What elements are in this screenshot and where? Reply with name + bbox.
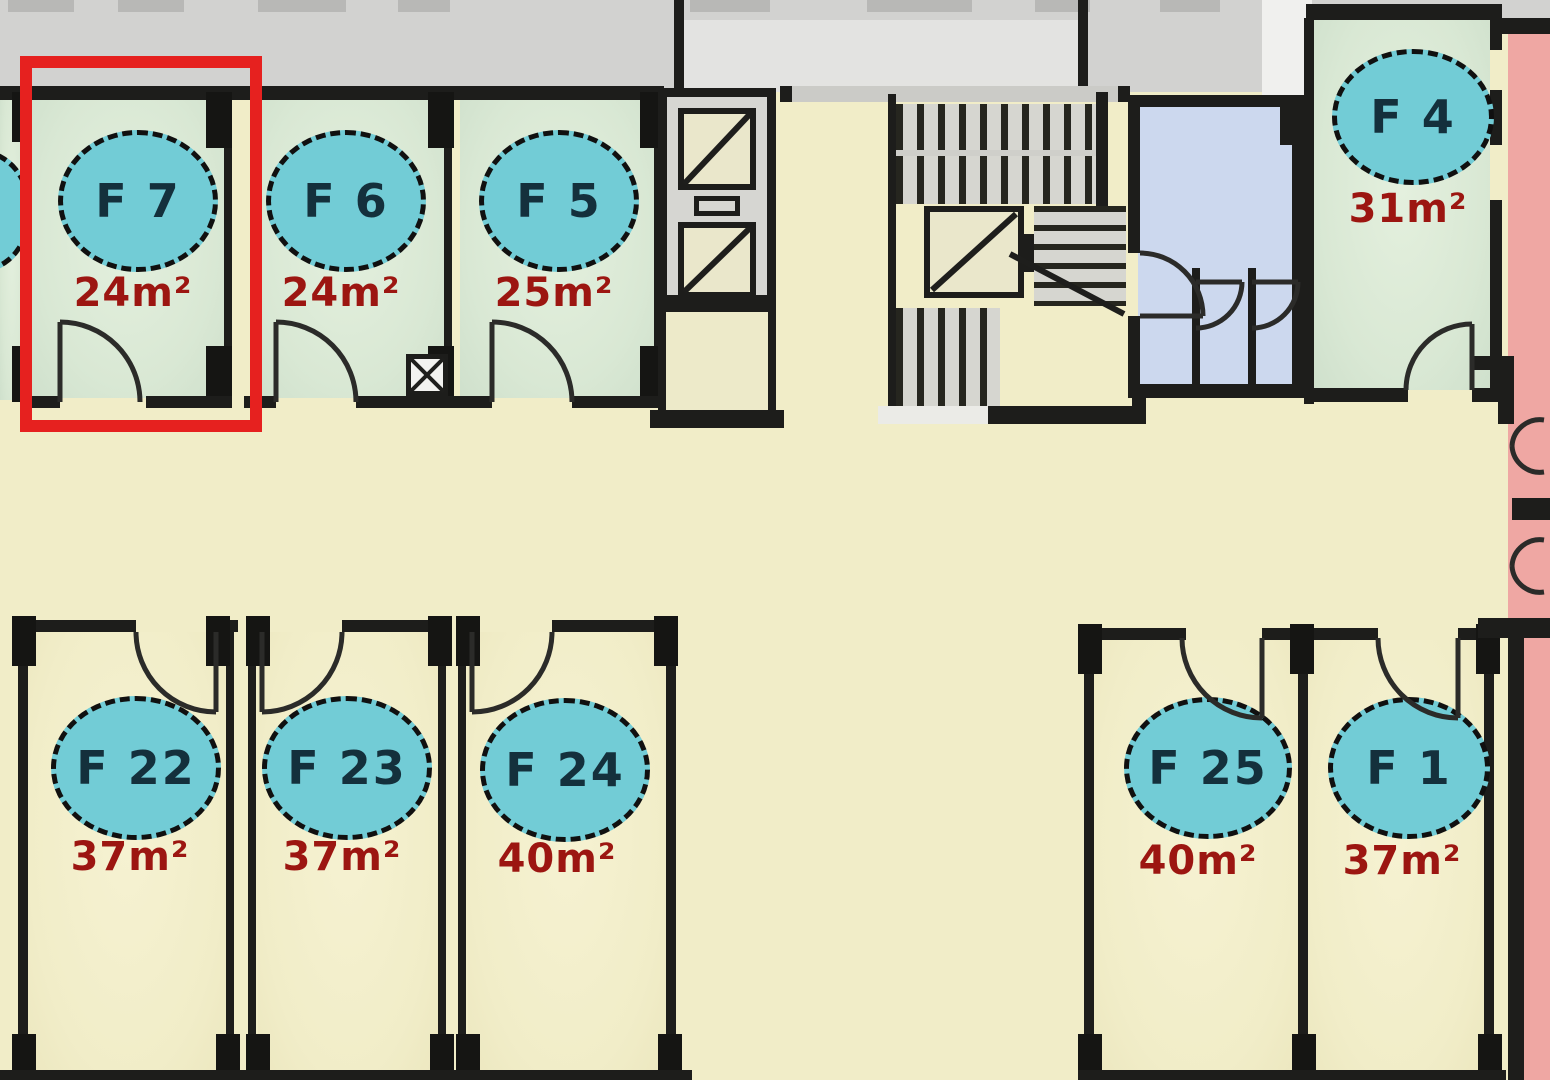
unit-f23-badge: F 23 — [262, 696, 432, 840]
facade-tab — [258, 0, 346, 12]
wall-post — [206, 616, 230, 666]
wall — [666, 620, 676, 1080]
unit-f6-area: 24m² — [241, 270, 441, 316]
unit-f1-label: F 1 — [1366, 741, 1451, 795]
wall — [1508, 638, 1524, 1080]
wall-post — [654, 616, 678, 666]
wall — [1498, 356, 1514, 424]
wall — [1308, 628, 1378, 640]
unit-f1-badge: F 1 — [1328, 697, 1490, 839]
wall — [1304, 388, 1408, 402]
wall — [18, 620, 28, 1080]
stairs-right-flight — [1034, 206, 1126, 306]
wall — [1078, 0, 1088, 90]
wall — [0, 1070, 692, 1080]
unit-f4-area: 31m² — [1308, 186, 1508, 232]
wall — [356, 396, 452, 408]
stair-landing-line — [896, 150, 1096, 156]
unit-f23-area: 37m² — [242, 834, 442, 880]
floor-plan: F 7 F 6 F 5 F 4 F 22 F 23 F 24 F 25 F 1 … — [0, 0, 1550, 1080]
facade-tab — [398, 0, 450, 12]
wall — [1096, 92, 1108, 214]
facade-tab — [690, 0, 770, 12]
unit-f25-label: F 25 — [1148, 741, 1267, 795]
wall-post — [1078, 624, 1102, 674]
wall — [1512, 498, 1550, 520]
facade-tab — [8, 0, 74, 12]
wall — [780, 86, 792, 102]
duct-shaft — [406, 354, 448, 396]
facade-tab — [867, 0, 972, 12]
wall — [572, 396, 662, 408]
wall — [888, 94, 896, 418]
wc-room — [1138, 105, 1302, 387]
unit-f23-label: F 23 — [287, 741, 406, 795]
elevator-car-icon — [678, 222, 756, 298]
unit-f1-area: 37m² — [1302, 838, 1502, 884]
wc-stall-divider — [1248, 268, 1256, 386]
elevator-car-icon — [678, 108, 756, 190]
service-room — [658, 304, 776, 420]
wall-post — [428, 616, 452, 666]
entry-canopy — [682, 20, 1078, 92]
core-elevator-icon — [924, 206, 1024, 298]
wall — [452, 396, 492, 408]
wall — [674, 0, 684, 90]
wall — [1078, 1070, 1506, 1080]
wall-post — [12, 616, 36, 666]
unit-f22-area: 37m² — [30, 834, 230, 880]
wall — [1128, 95, 1140, 253]
wall — [1478, 618, 1550, 638]
unit-f22-badge: F 22 — [51, 696, 221, 840]
unit-f5-area: 25m² — [454, 270, 654, 316]
unit-f4-badge: F 4 — [1332, 49, 1494, 185]
stair-landing — [878, 406, 988, 424]
wall — [650, 410, 784, 428]
wall — [1280, 95, 1306, 145]
wall-post — [1290, 624, 1314, 674]
wall-post — [428, 92, 454, 148]
facade-tab — [118, 0, 184, 12]
wall-post — [456, 616, 480, 666]
unit-f25-badge: F 25 — [1124, 697, 1292, 839]
unit-f24-area: 40m² — [457, 836, 657, 882]
wall — [1306, 4, 1502, 20]
wc-stall-divider — [1192, 268, 1200, 386]
wall — [1490, 5, 1502, 50]
unit-f6-label: F 6 — [303, 174, 388, 228]
unit-f24-badge: F 24 — [480, 698, 650, 842]
wall — [1084, 628, 1094, 1080]
unit-f22-label: F 22 — [76, 741, 195, 795]
facade-tab — [1160, 0, 1220, 12]
elevator-coupler — [694, 196, 740, 216]
unit-f6-badge: F 6 — [266, 130, 426, 272]
wall-post — [246, 616, 270, 666]
stairs-lower-flight — [896, 308, 1000, 410]
unit-f5-badge: F 5 — [479, 130, 639, 272]
unit-f25-area: 40m² — [1098, 838, 1298, 884]
unit-f5-label: F 5 — [516, 174, 601, 228]
corridor-top-edge — [780, 86, 1130, 102]
highlight-box-f7 — [20, 56, 262, 432]
unit-f24-label: F 24 — [505, 743, 624, 797]
unit-f4-label: F 4 — [1370, 90, 1455, 144]
wall — [988, 406, 1146, 424]
wall — [1128, 384, 1306, 398]
